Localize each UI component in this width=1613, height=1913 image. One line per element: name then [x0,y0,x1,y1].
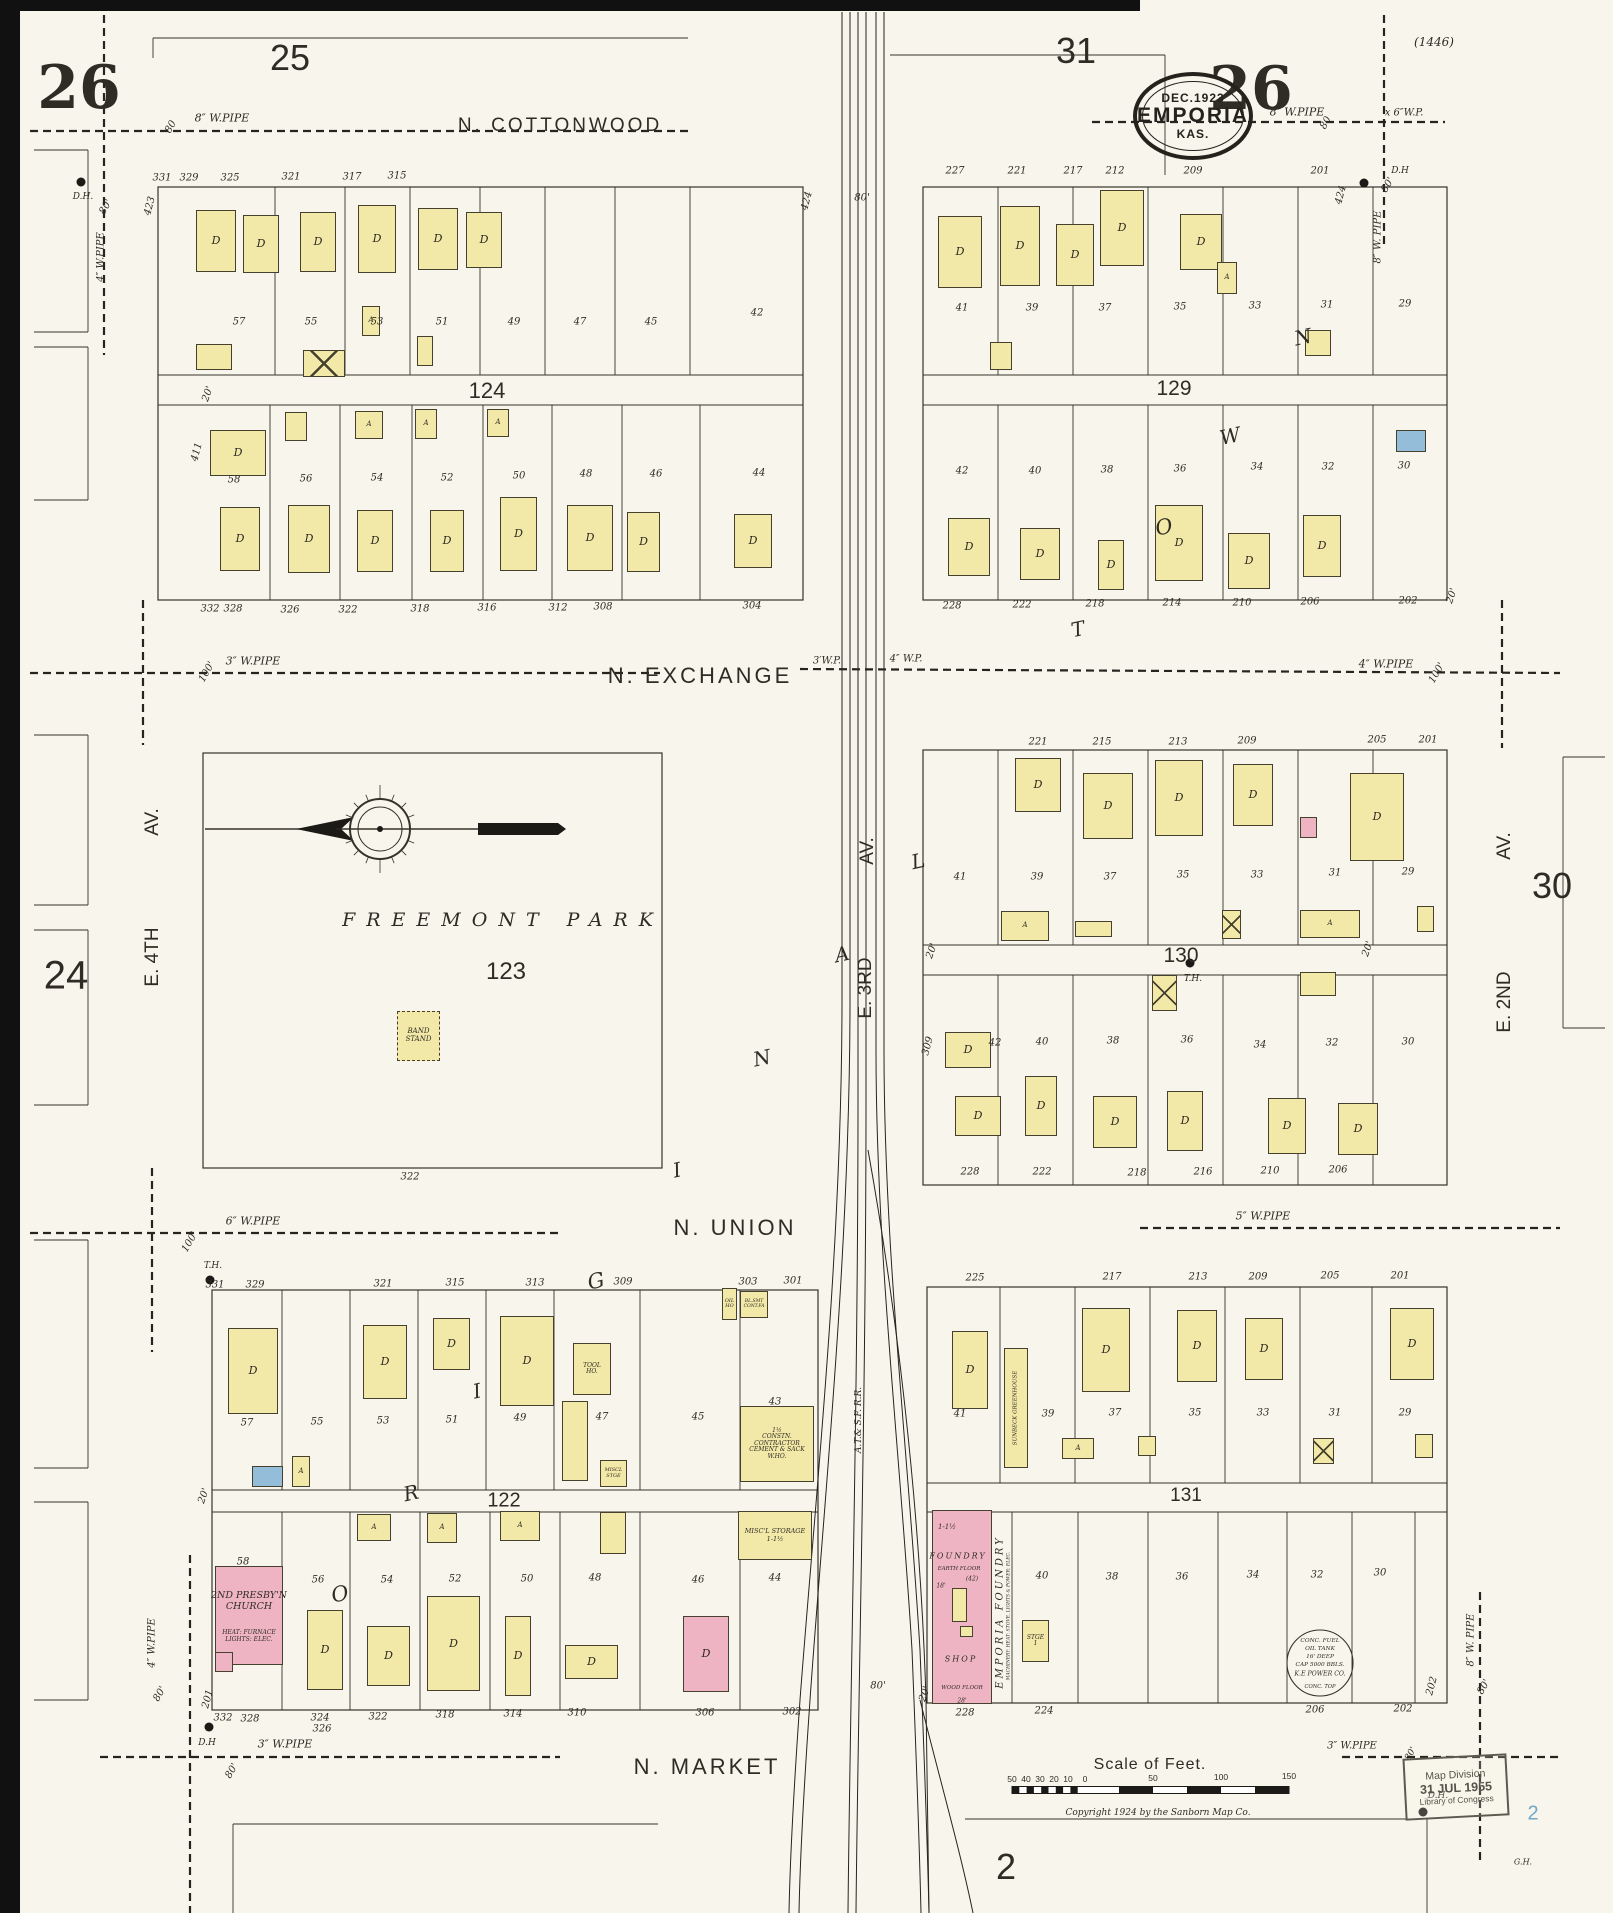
building-stge: STGE 1 [1022,1620,1049,1662]
building [960,1626,973,1637]
building: D [466,212,502,268]
building: D [1000,206,1040,286]
map-state: KAS. [1177,127,1210,141]
building-label: D [480,234,489,246]
building-misc-l-storage: MISC'L STORAGE 1-1½ [738,1511,812,1560]
building: D [955,1096,1001,1136]
building: D [1056,224,1094,286]
building: D [683,1616,729,1692]
building: D [1233,764,1273,826]
building: A [427,1513,457,1543]
building: D [1338,1103,1378,1155]
building-label: D [1318,540,1327,552]
building [215,1566,283,1665]
building: D [1167,1091,1203,1151]
building-label: D [1037,1100,1046,1112]
building-label: D [587,1656,596,1668]
building-label: D [1102,1344,1111,1356]
building-label: BAND STAND [406,1028,432,1043]
building-label: D [702,1648,711,1660]
building-label: D [381,1356,390,1368]
building: D [500,1316,554,1406]
building-label: D [234,447,243,459]
building-label: A [423,420,428,428]
building: D [734,514,772,568]
building-label: D [1197,236,1206,248]
building: D [228,1328,278,1414]
building-label: D [964,1044,973,1056]
building [252,1466,283,1487]
building-label: D [1283,1120,1292,1132]
building-bl-smt: BL.SMT CONT.FA [740,1291,768,1318]
building: D [505,1616,531,1696]
building [1305,330,1331,356]
building: D [1020,528,1060,580]
sanborn-map-sheet: DDDDDDAAAADDDDDDDDDDDDDDADDDDDDDDDDDAADD… [0,0,1613,1913]
building-label: A [1224,274,1229,282]
building: A [362,306,380,336]
building-label: D [1175,792,1184,804]
building: A [1001,911,1049,941]
building: A [357,1514,391,1541]
building [1138,1436,1156,1456]
building-label: D [371,535,380,547]
building: D [427,1596,480,1691]
building: D [418,208,458,270]
building: A [415,409,437,439]
building-label: D [1034,779,1043,791]
building: D [1350,773,1404,861]
building: D [945,1032,991,1068]
building-label: D [1175,537,1184,549]
building: D [1245,1318,1283,1380]
building-label: D [314,236,323,248]
building: D [1155,760,1203,836]
building-label: D [305,533,314,545]
building: D [357,510,393,572]
building-label: D [523,1355,532,1367]
building: D [952,1331,988,1409]
building: A [500,1511,540,1541]
building-label: D [1354,1123,1363,1135]
building-label: D [1181,1115,1190,1127]
building-label: D [449,1638,458,1650]
building-label: BL.SMT CONT.FA [744,1300,765,1310]
building-label: D [749,535,758,547]
building: D [1228,533,1270,589]
building-label: A [495,419,500,427]
map-date: DEC.1923 [1161,91,1224,105]
library-stamp: Map Division 31 JUL 1955 Library of Cong… [1402,1753,1509,1820]
building [1415,1434,1433,1458]
building-band: BAND STAND [397,1011,440,1061]
building [1222,910,1241,939]
building: D [938,216,982,288]
building-1-: 1½ CONSTN. CONTRACTOR CEMENT & SACK W.HO… [740,1406,814,1482]
building-label: D [257,238,266,250]
building [1152,975,1177,1011]
building [1313,1438,1334,1464]
building-label: D [212,235,221,247]
building: D [430,510,464,572]
building: D [220,507,260,571]
building-label: D [384,1650,393,1662]
building: D [1098,540,1124,590]
building [196,344,232,370]
building [215,1652,233,1672]
building-label: OIL HO [725,1299,734,1310]
building [562,1401,588,1481]
sanborn-title-oval: DEC.1923 EMPORIA KAS. [1133,72,1253,160]
building [990,342,1012,370]
building: D [1268,1098,1306,1154]
building: D [567,505,613,571]
building [1396,430,1426,452]
building-label: D [434,233,443,245]
building: A [355,411,383,439]
building-label: D [1036,548,1045,560]
building-label: D [373,233,382,245]
building-label: D [965,541,974,553]
building: D [1155,505,1203,581]
building: A [1300,910,1360,938]
building: A [1062,1438,1094,1459]
buildings-layer: DDDDDDAAAADDDDDDDDDDDDDDADDDDDDDDDDDAADD… [0,0,1613,1913]
building-label: A [517,1522,522,1530]
building-label: A [439,1524,444,1532]
building-label: A [1075,1445,1080,1453]
building-label: 1½ CONSTN. CONTRACTOR CEMENT & SACK W.HO… [741,1428,813,1460]
building-label: D [956,246,965,258]
building: D [243,215,279,273]
building-label: A [371,1524,376,1532]
building-label: D [1071,249,1080,261]
building-label: D [974,1110,983,1122]
building: D [1083,773,1133,839]
building: D [363,1325,407,1399]
building: D [948,518,990,576]
building-label: D [1249,789,1258,801]
building-label: D [1408,1338,1417,1350]
building-label: D [1111,1116,1120,1128]
building: D [358,205,396,273]
building-tool: TOOL HO. [573,1343,611,1395]
building-label: D [1193,1340,1202,1352]
building [417,336,433,366]
building: D [210,430,266,476]
building-label: D [249,1365,258,1377]
building: D [1093,1096,1137,1148]
building-label: SUNBECK GREENHOUSE [1013,1371,1019,1445]
building: D [1177,1310,1217,1382]
building-sunbeck-greenhouse: SUNBECK GREENHOUSE [1004,1348,1028,1468]
building: D [565,1645,618,1679]
building: D [433,1318,470,1370]
building: D [288,505,330,573]
building-miscl: MISCL STGE [600,1460,627,1487]
building-label: STGE 1 [1027,1635,1044,1648]
building: D [1180,214,1222,270]
building-label: D [586,532,595,544]
building: D [367,1626,410,1686]
building: D [1025,1076,1057,1136]
building-label: MISC'L STORAGE 1-1½ [745,1528,805,1542]
building-label: D [321,1644,330,1656]
building: D [300,212,336,272]
building: D [307,1610,343,1690]
building [1300,817,1317,838]
building: A [292,1456,310,1487]
building: D [1390,1308,1434,1380]
building: D [1082,1308,1130,1392]
building-label: A [368,317,373,325]
building [600,1512,626,1554]
building-label: D [1104,800,1113,812]
building-label: D [1373,811,1382,823]
building: D [627,512,660,572]
building [303,350,345,377]
building-oil: OIL HO [722,1288,737,1320]
building: D [1015,758,1061,812]
building: D [500,497,537,571]
building-label: MISCL STGE [605,1468,623,1479]
building [952,1588,967,1622]
building-label: TOOL HO. [583,1363,601,1376]
building-label: D [1107,559,1116,571]
building-label: D [966,1364,975,1376]
building-label: D [236,533,245,545]
building-label: D [1118,222,1127,234]
building [1300,972,1336,996]
building: A [487,409,509,437]
building: A [1217,262,1237,294]
building-label: D [514,1650,523,1662]
building-label: A [1327,920,1332,928]
building-label: D [1016,240,1025,252]
map-city: EMPORIA [1137,104,1249,128]
building-label: D [1260,1343,1269,1355]
building [1417,906,1434,932]
building: D [1303,515,1341,577]
building-label: A [1022,922,1027,930]
sanborn-title-oval-inner: DEC.1923 EMPORIA KAS. [1142,81,1244,151]
building [1075,921,1112,937]
building-label: D [443,535,452,547]
building [285,412,307,441]
building-label: A [366,421,371,429]
building-label: A [298,1468,303,1476]
building-label: D [447,1338,456,1350]
building: D [196,210,236,272]
building-label: D [639,536,648,548]
building-label: D [514,528,523,540]
building-label: D [1245,555,1254,567]
building: D [1100,190,1144,266]
